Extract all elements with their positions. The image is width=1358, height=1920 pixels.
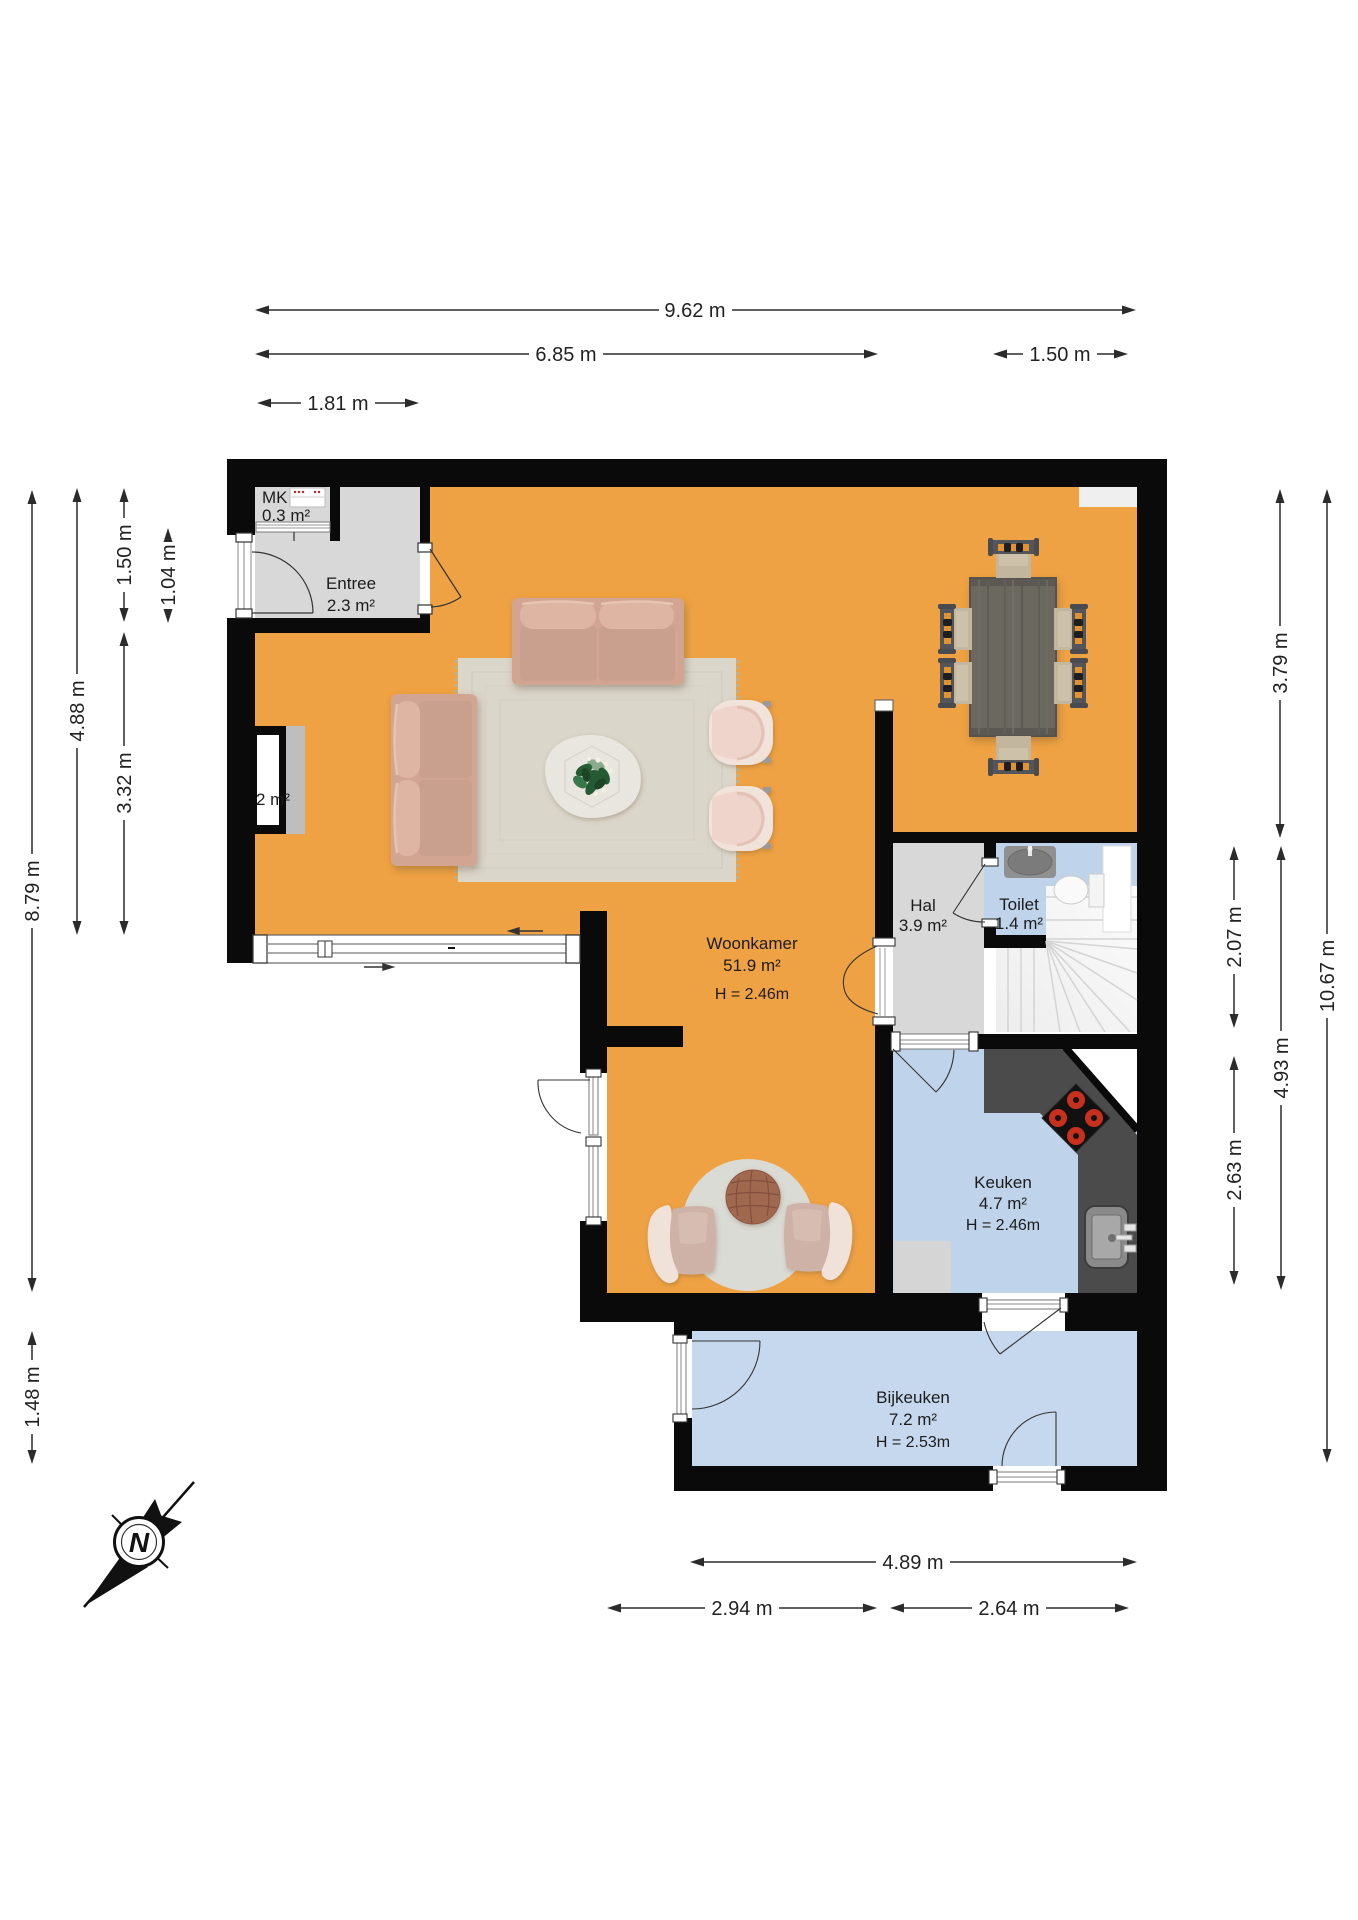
svg-text:1.50 m: 1.50 m	[1029, 344, 1090, 366]
svg-text:Hal: Hal	[910, 896, 936, 915]
svg-text:1.04 m: 1.04 m	[158, 544, 180, 605]
svg-text:Toilet: Toilet	[999, 895, 1039, 914]
svg-text:Keuken: Keuken	[974, 1173, 1032, 1192]
svg-text:3.9 m²: 3.9 m²	[899, 916, 948, 935]
svg-text:4.88 m: 4.88 m	[67, 680, 89, 741]
svg-text:3.79 m: 3.79 m	[1270, 632, 1292, 693]
svg-text:2.63 m: 2.63 m	[1224, 1139, 1246, 1200]
svg-text:1.48 m: 1.48 m	[22, 1366, 44, 1427]
svg-text:2.64 m: 2.64 m	[978, 1598, 1039, 1620]
svg-text:N: N	[129, 1527, 150, 1558]
svg-text:0.3 m²: 0.3 m²	[262, 506, 311, 525]
svg-text:H = 2.46m: H = 2.46m	[715, 986, 789, 1003]
svg-text:6.85 m: 6.85 m	[535, 344, 596, 366]
svg-text:1.4 m²: 1.4 m²	[995, 914, 1044, 933]
svg-text:Bijkeuken: Bijkeuken	[876, 1388, 950, 1407]
svg-text:1.81 m: 1.81 m	[307, 393, 368, 415]
svg-text:3.32 m: 3.32 m	[114, 752, 136, 813]
svg-text:4.93 m: 4.93 m	[1271, 1037, 1293, 1098]
svg-text:4.7 m²: 4.7 m²	[979, 1194, 1028, 1213]
svg-text:Woonkamer: Woonkamer	[706, 934, 798, 953]
svg-text:4.89 m: 4.89 m	[882, 1552, 943, 1574]
svg-text:10.67 m: 10.67 m	[1317, 940, 1339, 1012]
svg-text:H = 2.46m: H = 2.46m	[966, 1217, 1040, 1234]
svg-text:1.50 m: 1.50 m	[114, 524, 136, 585]
svg-text:7.2 m²: 7.2 m²	[889, 1410, 938, 1429]
svg-text:Entree: Entree	[326, 574, 376, 593]
svg-text:2 m²: 2 m²	[256, 790, 290, 809]
svg-text:2.07 m: 2.07 m	[1224, 906, 1246, 967]
svg-text:9.62 m: 9.62 m	[664, 300, 725, 322]
svg-text:51.9 m²: 51.9 m²	[723, 956, 781, 975]
svg-text:H = 2.53m: H = 2.53m	[876, 1434, 950, 1451]
svg-text:2.94 m: 2.94 m	[711, 1598, 772, 1620]
svg-text:MK: MK	[262, 488, 288, 507]
svg-text:2.3 m²: 2.3 m²	[327, 596, 376, 615]
svg-text:8.79 m: 8.79 m	[22, 860, 44, 921]
